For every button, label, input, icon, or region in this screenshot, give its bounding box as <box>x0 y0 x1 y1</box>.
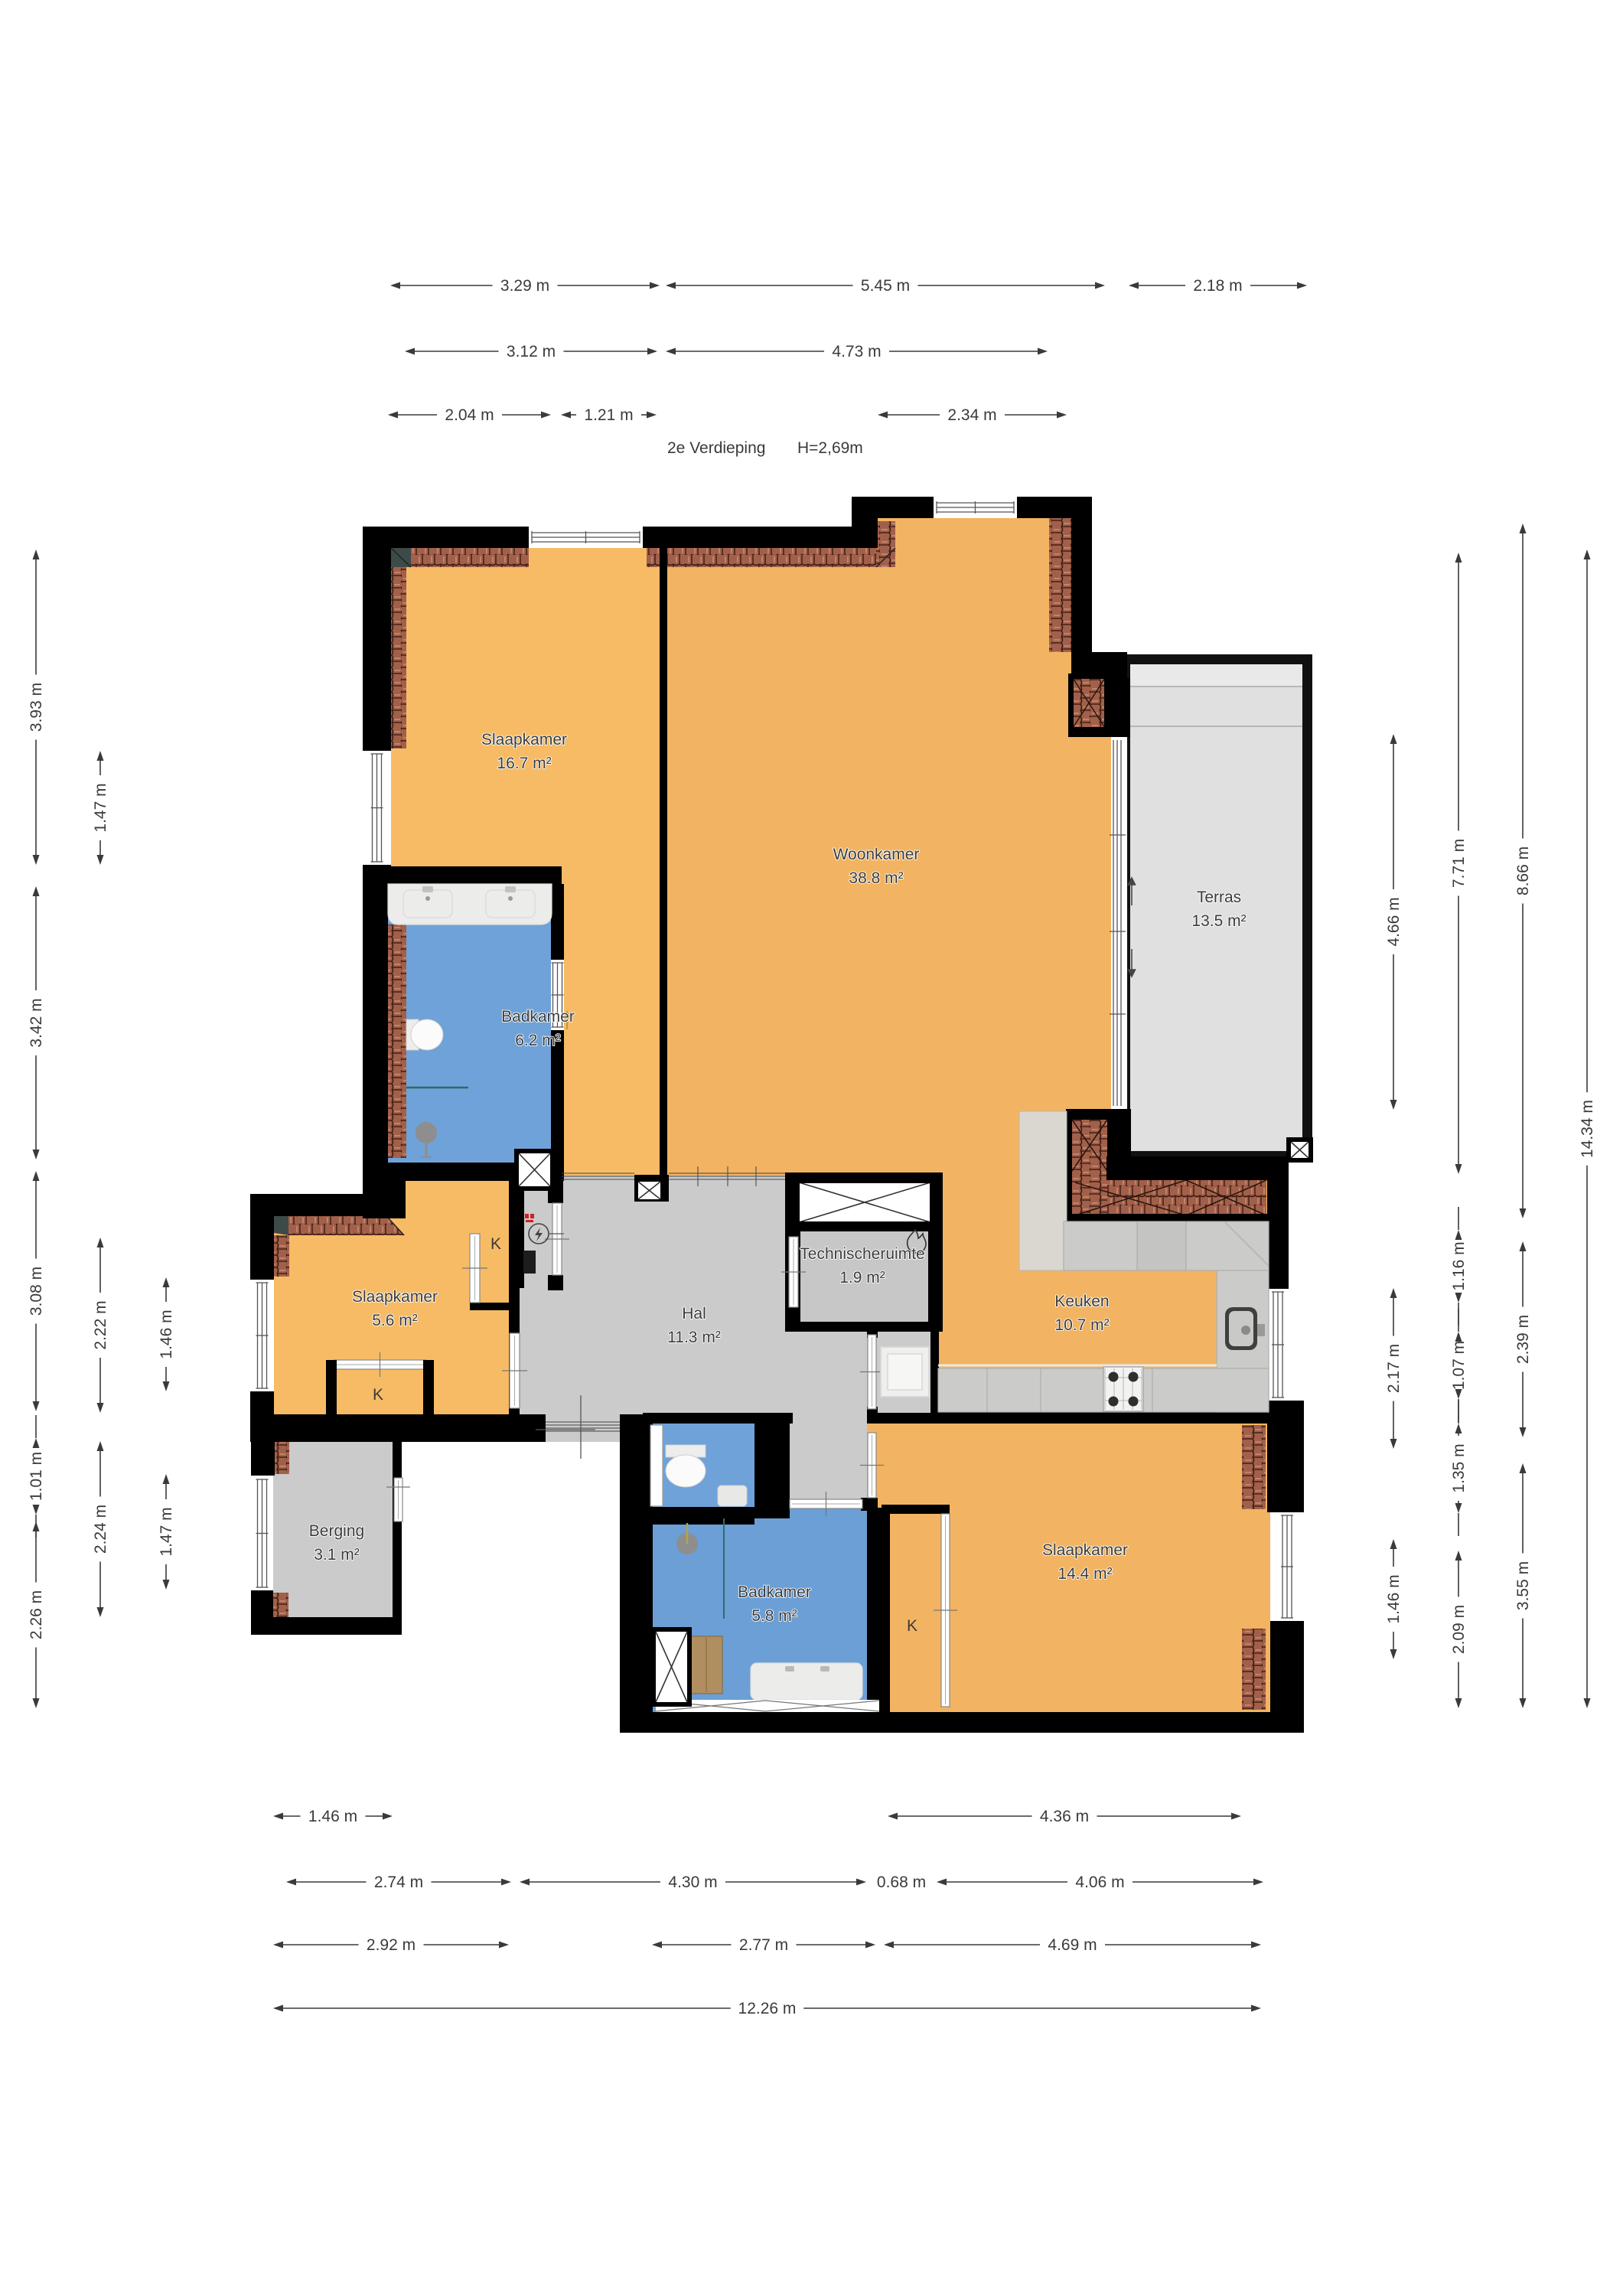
svg-text:5.8 m²: 5.8 m² <box>751 1607 797 1625</box>
svg-text:12.26 m: 12.26 m <box>738 2000 797 2017</box>
svg-text:Terras: Terras <box>1197 889 1241 906</box>
svg-text:2.22 m: 2.22 m <box>92 1300 109 1349</box>
svg-text:4.30 m: 4.30 m <box>668 1874 717 1891</box>
svg-text:3.29 m: 3.29 m <box>500 277 549 295</box>
svg-text:3.42 m: 3.42 m <box>28 998 45 1047</box>
svg-text:1.01 m: 1.01 m <box>28 1452 45 1501</box>
svg-text:3.93 m: 3.93 m <box>28 683 45 732</box>
svg-text:4.36 m: 4.36 m <box>1040 1808 1089 1825</box>
svg-text:Technischeruimte: Technischeruimte <box>800 1245 924 1263</box>
svg-text:1.07 m: 1.07 m <box>1450 1341 1468 1390</box>
svg-text:2.74 m: 2.74 m <box>374 1874 423 1891</box>
svg-text:14.34 m: 14.34 m <box>1579 1100 1596 1158</box>
svg-text:8.66 m: 8.66 m <box>1514 846 1532 895</box>
svg-text:4.69 m: 4.69 m <box>1048 1936 1097 1954</box>
svg-text:1.35 m: 1.35 m <box>1450 1443 1468 1492</box>
svg-text:2.92 m: 2.92 m <box>367 1936 416 1954</box>
svg-text:K: K <box>907 1617 917 1635</box>
svg-text:7.71 m: 7.71 m <box>1450 839 1468 888</box>
svg-text:5.6 m²: 5.6 m² <box>372 1312 418 1329</box>
svg-text:3.12 m: 3.12 m <box>507 343 556 360</box>
svg-text:1.47 m: 1.47 m <box>92 783 109 832</box>
svg-text:3.55 m: 3.55 m <box>1514 1561 1532 1610</box>
svg-text:Slaapkamer: Slaapkamer <box>352 1288 438 1306</box>
svg-text:6.2 m²: 6.2 m² <box>515 1032 561 1049</box>
svg-text:14.4 m²: 14.4 m² <box>1058 1565 1112 1583</box>
svg-text:2.04 m: 2.04 m <box>445 406 494 424</box>
svg-text:Woonkamer: Woonkamer <box>833 846 920 863</box>
svg-text:K: K <box>373 1386 383 1404</box>
svg-text:1.9 m²: 1.9 m² <box>839 1269 885 1287</box>
svg-text:0.68 m: 0.68 m <box>877 1874 926 1891</box>
svg-text:1.47 m: 1.47 m <box>158 1507 175 1556</box>
svg-text:1.21 m: 1.21 m <box>584 406 633 424</box>
svg-text:2.24 m: 2.24 m <box>92 1505 109 1554</box>
svg-text:1.46 m: 1.46 m <box>308 1808 357 1825</box>
svg-text:K: K <box>490 1235 501 1253</box>
svg-text:38.8 m²: 38.8 m² <box>849 869 903 887</box>
svg-text:2.34 m: 2.34 m <box>947 406 996 424</box>
svg-text:4.73 m: 4.73 m <box>832 343 881 360</box>
svg-text:2.17 m: 2.17 m <box>1385 1344 1403 1393</box>
svg-text:1.46 m: 1.46 m <box>1385 1574 1403 1623</box>
svg-text:4.06 m: 4.06 m <box>1075 1874 1124 1891</box>
svg-text:3.1 m²: 3.1 m² <box>314 1546 360 1564</box>
svg-text:11.3 m²: 11.3 m² <box>667 1329 721 1346</box>
svg-text:16.7 m²: 16.7 m² <box>497 755 551 772</box>
svg-text:H=2,69m: H=2,69m <box>797 439 863 457</box>
svg-text:Badkamer: Badkamer <box>501 1008 575 1026</box>
svg-text:Keuken: Keuken <box>1054 1293 1109 1310</box>
svg-text:Slaapkamer: Slaapkamer <box>481 731 567 748</box>
svg-text:Badkamer: Badkamer <box>738 1583 811 1601</box>
svg-text:Slaapkamer: Slaapkamer <box>1042 1541 1128 1559</box>
svg-text:5.45 m: 5.45 m <box>861 277 910 295</box>
svg-text:13.5 m²: 13.5 m² <box>1191 912 1246 930</box>
svg-text:2.09 m: 2.09 m <box>1450 1605 1468 1654</box>
svg-text:3.08 m: 3.08 m <box>28 1267 45 1316</box>
svg-text:2.77 m: 2.77 m <box>739 1936 788 1954</box>
svg-text:1.46 m: 1.46 m <box>158 1309 175 1358</box>
svg-text:1.16 m: 1.16 m <box>1450 1241 1468 1290</box>
svg-text:Berging: Berging <box>309 1522 364 1540</box>
svg-text:2.39 m: 2.39 m <box>1514 1315 1532 1364</box>
svg-text:10.7 m²: 10.7 m² <box>1054 1316 1109 1334</box>
svg-text:2.26 m: 2.26 m <box>28 1590 45 1639</box>
svg-text:Hal: Hal <box>682 1305 706 1322</box>
svg-text:4.66 m: 4.66 m <box>1385 897 1403 946</box>
svg-text:2e Verdieping: 2e Verdieping <box>667 439 765 457</box>
svg-text:2.18 m: 2.18 m <box>1193 277 1242 295</box>
